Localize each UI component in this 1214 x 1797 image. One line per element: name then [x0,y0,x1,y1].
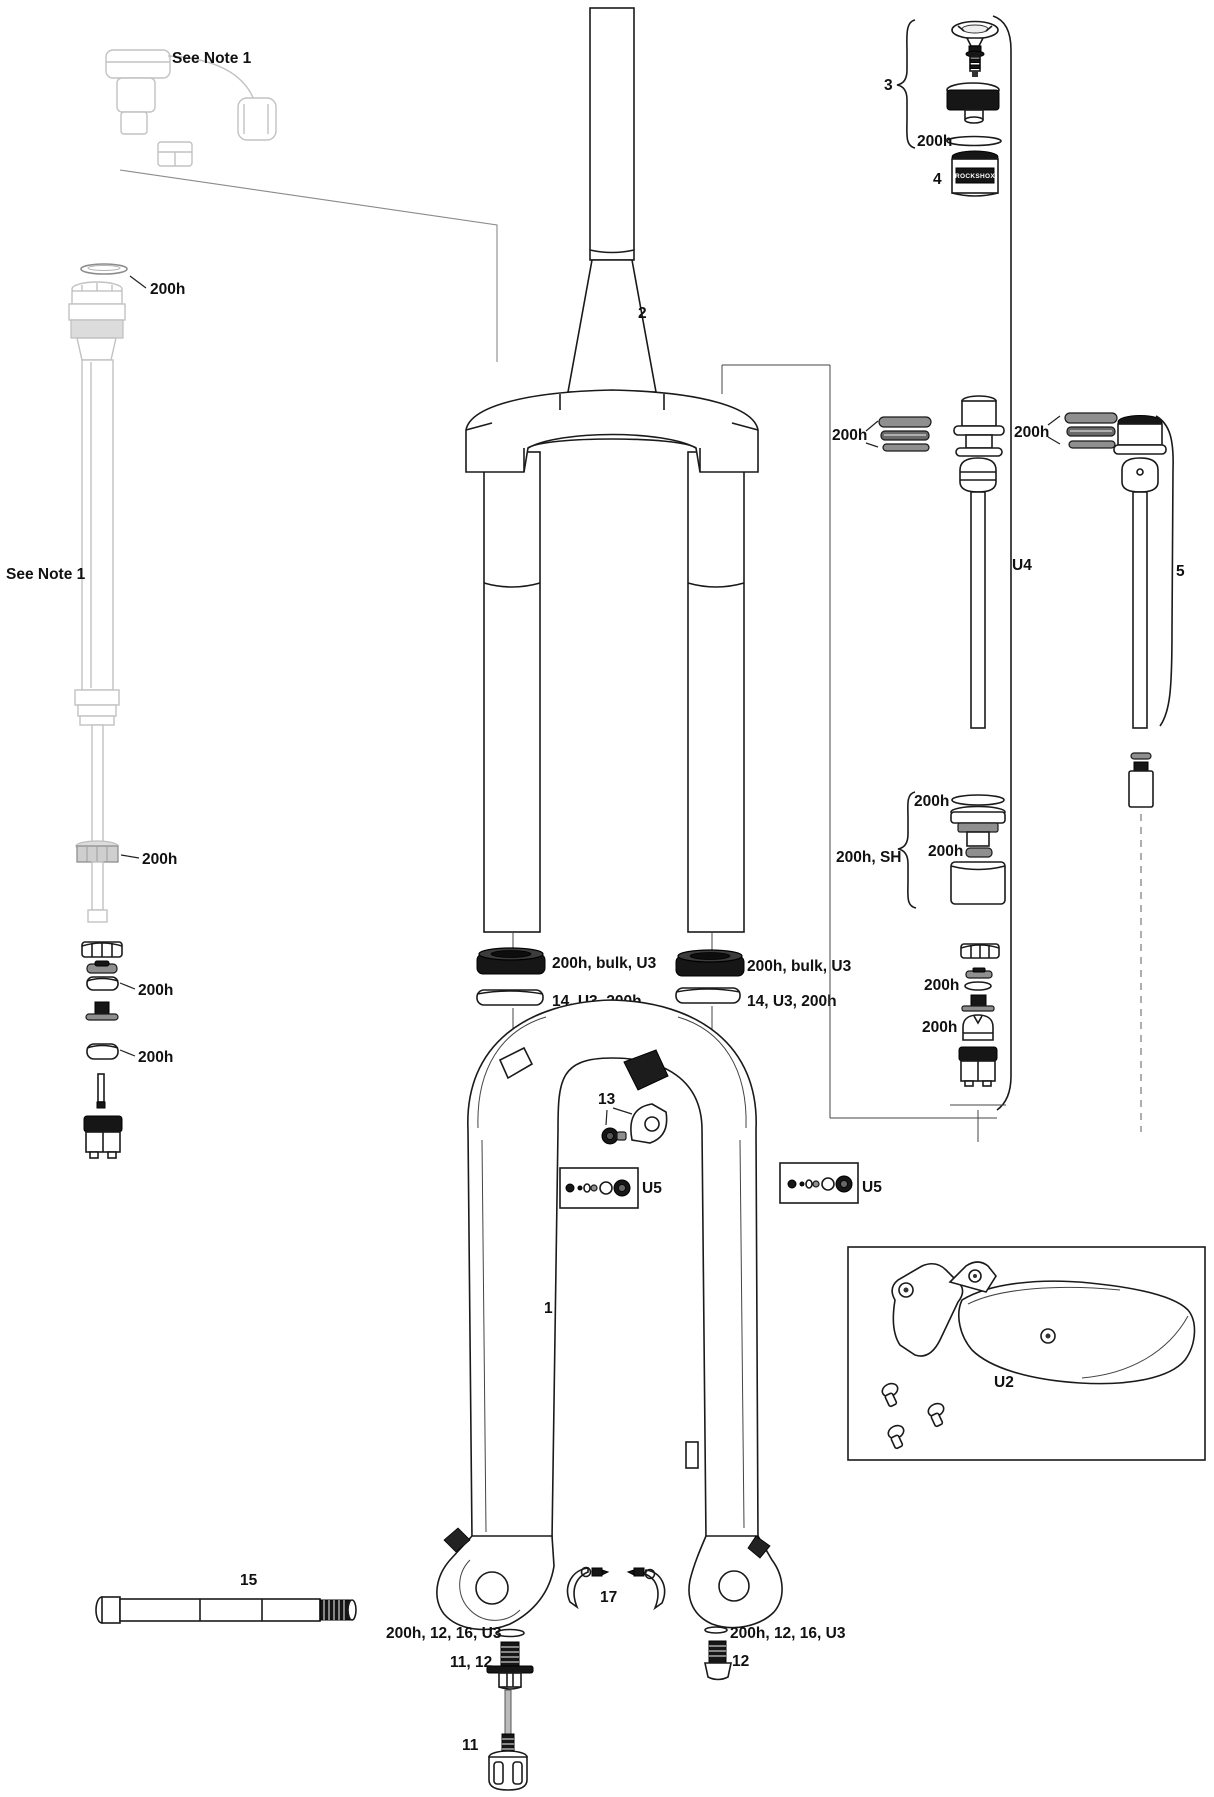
label-damper-adjuster: 200h [142,851,177,868]
remote-lockout-ghost [106,50,276,166]
label-foot-bolt-left-group: 200h, 12, 16, U3 [386,1625,502,1642]
shim-kit-left [560,1168,638,1208]
dust-seal-left [477,948,545,974]
foam-ring-left [477,990,543,1005]
label-left-ring-lower: 200h [138,1049,173,1066]
label-seal-head-group: 200h, SH [836,849,901,866]
label-upper-oring: 200h [150,281,185,298]
label-see-note-1-left: See Note 1 [6,566,86,583]
foot-bolt-right [705,1627,731,1680]
leader-damper-glide-rings [1048,416,1060,444]
label-fender-bolt: 13 [598,1091,616,1108]
label-foam-ring-right: 14, U3, 200h [747,993,837,1010]
shim-kit-right [780,1163,858,1203]
dust-seal-right [676,950,744,976]
label-seal-head-washer: 200h [928,843,963,860]
air-topcap-group [947,22,1001,197]
damper-glide-rings [1065,413,1117,448]
label-axle: 15 [240,1572,258,1589]
label-dust-seal-right: 200h, bulk, U3 [747,958,852,975]
leader-upper-oring [130,276,146,288]
label-seal-head-oring: 200h [914,793,949,810]
brace-group-3 [897,20,915,148]
label-lower-leg: 1 [544,1300,553,1317]
label-air-glide-rings: 200h [832,427,867,444]
damper-assembly-ghost [69,282,125,922]
foam-ring-right [676,988,740,1003]
label-air-top-cap: 4 [933,171,942,188]
air-shaft-assembly [954,396,1004,728]
label-reb-oring: 200h [924,977,959,994]
left-adjuster-parts [82,942,122,1158]
leader-left-ring-upper [120,983,135,989]
label-damper-glide-rings: 200h [1014,424,1049,441]
label-air-top-oring: 200h [917,133,952,150]
fender-kit-box [848,1247,1205,1460]
leader-damper-adjuster [121,855,139,858]
damper-shaft-assembly [1114,416,1166,729]
leader-air-glide-rings [866,421,878,447]
rebound-needle-and-knob [489,1690,527,1790]
label-foot-bolt-left: 11, 12 [450,1654,492,1671]
label-left-ring-upper: 200h [138,982,173,999]
diagram-canvas: See Note 1 200h See Note 1 200h [0,0,1214,1797]
leader-fender-bolt [606,1108,632,1125]
label-foot-bolt-right-group: 200h, 12, 16, U3 [730,1625,846,1642]
rebound-adjuster-parts [959,944,999,1086]
label-shim-kit-left: U5 [642,1180,662,1197]
label-dust-seal-left: 200h, bulk, U3 [552,955,657,972]
label-shim-kit-right: U5 [862,1179,882,1196]
label-steerer: 2 [638,305,647,322]
label-reb-detent: 200h [922,1019,957,1036]
leader-left-ring-lower [120,1050,135,1056]
fender-bolt-and-clip [602,1104,667,1144]
label-see-note-1-top: See Note 1 [172,50,252,67]
leader-remote-to-crown [120,170,497,362]
label-group-air-top: 3 [884,77,893,94]
crown-steerer-upper-tubes [466,8,758,932]
part4-logo-text: ROCKSHOX [955,173,995,180]
label-air-shaft-group: U4 [1012,557,1032,574]
label-damper-shaft-group: 5 [1176,563,1185,580]
label-rebound-knob: 11 [462,1737,479,1754]
thru-axle [96,1597,356,1623]
exploded-diagram-page: See Note 1 200h See Note 1 200h [0,0,1214,1797]
upper-left-oring [81,264,127,274]
damper-lower-parts [1129,753,1153,807]
brace-group-5 [1156,416,1173,726]
dropout-right [689,1536,782,1628]
label-fender-kit: U2 [994,1374,1014,1391]
label-foot-bolt-right: 12 [732,1653,749,1670]
air-glide-rings [879,417,931,451]
label-hose-guide: 17 [600,1589,617,1606]
